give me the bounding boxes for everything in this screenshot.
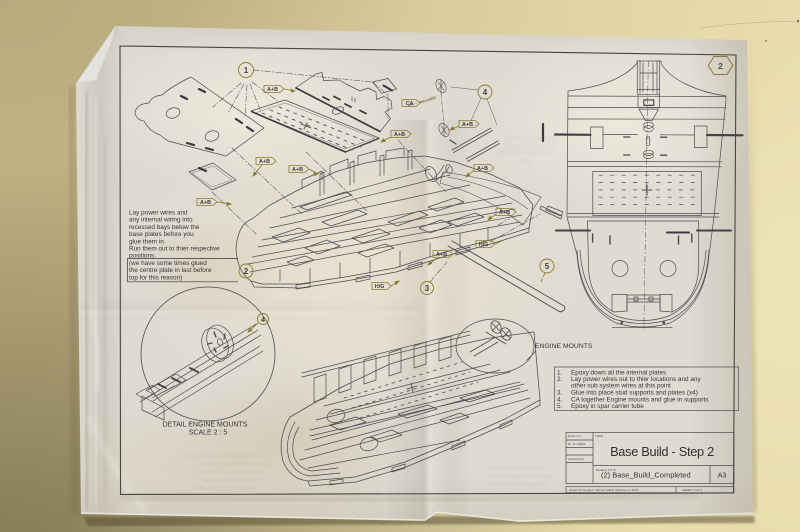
svg-text:Drawn by :: Drawn by : [568,434,583,438]
svg-text:4: 4 [261,317,265,324]
svg-text:A+B: A+B [477,166,488,172]
svg-text:Dr. W.J.Black: Dr. W.J.Black [568,442,586,446]
svg-text:(we have some times glued: (we have some times glued [129,260,207,267]
svg-text:bns aqota eqt lls qtiw: bns aqota eqt lls qtiw [505,143,555,149]
svg-text:A+B: A+B [200,200,211,206]
svg-text:2: 2 [244,267,249,276]
svg-text:Epoxy in spar carrier tube: Epoxy in spar carrier tube [571,403,644,410]
svg-text:Run them out to thier respecti: Run them out to thier respective [129,246,220,253]
svg-text:H/G: H/G [375,284,385,290]
svg-text:5.: 5. [557,403,563,410]
svg-text:A+B: A+B [267,87,278,93]
svg-text:Base Build - Step 2: Base Build - Step 2 [610,444,714,459]
svg-text:4: 4 [483,88,488,97]
svg-text:aetslq lsmetni eqt nwob: aetslq lsmetni eqt nwob [496,150,552,156]
svg-text:to ealq pnibbe to select gnit: to ealq pnibbe to select gnit [184,453,260,460]
svg-text:A+B: A+B [436,252,447,258]
svg-text:A+B: A+B [499,210,510,216]
svg-text:3: 3 [425,284,430,293]
svg-text:A3: A3 [718,473,727,480]
svg-text:5: 5 [545,262,550,271]
svg-text:ENGINE MOUNTS: ENGINE MOUNTS [535,343,593,350]
svg-text:the centre plate in last befor: the centre plate in last before [129,267,212,274]
svg-text:(2) Base_Build_Completed: (2) Base_Build_Completed [601,471,691,480]
svg-text:A+B: A+B [462,122,473,128]
svg-text:ot qu bexit ai tsht llew: ot qu bexit ai tsht llew [506,136,558,142]
svg-text:glue them in.: glue them in. [129,238,166,245]
svg-text:A+B: A+B [259,159,270,165]
svg-text:SCALE 2 : 5: SCALE 2 : 5 [189,430,228,437]
svg-text:molleov noitsnigm gnitsslq: molleov noitsnigm gnitsslq [197,461,270,468]
svg-text:base plates before you: base plates before you [129,231,194,238]
svg-text:2: 2 [718,61,723,71]
svg-text:gniwob lliw egnittes bns: gniwob lliw egnittes bns [487,473,552,480]
svg-text:pnilsse qet bliull qorb: pnilsse qet bliull qorb [487,465,545,472]
svg-text:CA: CA [406,101,414,107]
svg-text:A+B: A+B [394,132,405,138]
svg-text:Green Air Designs / Dymer Gobl: Green Air Designs / Dymer Goblin VariKre… [569,488,639,492]
svg-text:sonlq sosl to troqque: sonlq sosl to troqque [202,477,260,484]
svg-text:A+B: A+B [292,167,303,173]
svg-text:stnioq emos bliub esa: stnioq emos bliub esa [488,481,548,488]
svg-text:any internal wiring into: any internal wiring into [129,217,193,224]
svg-text:Lay power wires and: Lay power wires and [129,210,188,217]
svg-text:tall ilct imate ve sbnimlq st: tall ilct imate ve sbnimlq st [193,469,265,476]
svg-text:ASA: ASA [519,159,530,165]
svg-text:aqt ot beionqque sticve: aqt ot beionqque sticve [191,485,255,492]
svg-text:DETAIL ENGINE MOUNTS: DETAIL ENGINE MOUNTS [163,422,248,429]
svg-text:SHEET 2 OF 5: SHEET 2 OF 5 [682,488,702,492]
svg-text:recessed bays below the: recessed bays below the [129,224,200,231]
svg-text:1: 1 [244,66,249,75]
svg-text:top for this reason): top for this reason) [129,274,182,281]
svg-text:Checked by :: Checked by : [568,457,586,461]
svg-text:2.: 2. [557,376,563,383]
svg-text:H/G: H/G [479,242,489,248]
svg-text:TRUE: TRUE [595,434,603,438]
svg-text:other sub system wires at this: other sub system wires at this point [571,383,671,390]
